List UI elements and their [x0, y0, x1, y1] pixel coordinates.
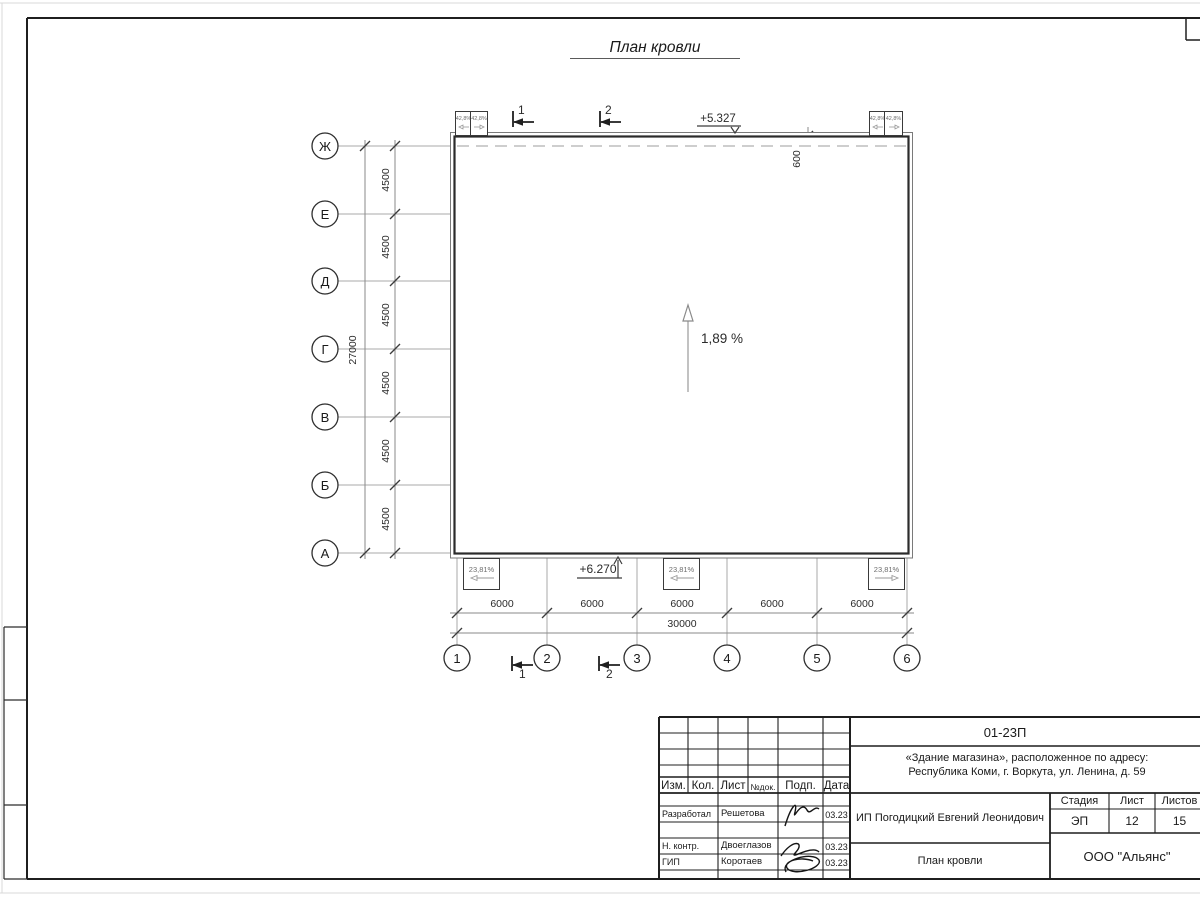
- tb-col-list: Лист: [718, 779, 748, 792]
- dim-row-spacing: 4500: [380, 225, 392, 269]
- axis-row-label: Б: [313, 473, 337, 497]
- dim-row-spacing: 4500: [380, 361, 392, 405]
- tb-name: Двоеглазов: [721, 840, 772, 851]
- dim-col-spacing: 6000: [750, 598, 794, 610]
- left-margin-stamp: [4, 627, 27, 879]
- dim-col-spacing: 6000: [570, 598, 614, 610]
- tb-date: 03.23: [823, 857, 850, 868]
- axis-col-label: 3: [625, 646, 649, 670]
- sheet-label: Лист: [1109, 794, 1155, 808]
- section-mark-number: 1: [518, 103, 525, 117]
- slope-right-arrow-icon: [888, 124, 900, 130]
- drain-slope-label: 23,81%: [874, 566, 899, 574]
- section-mark-number: 1: [519, 667, 526, 681]
- stage-value: ЭП: [1050, 812, 1109, 830]
- dim-col-spacing: 6000: [480, 598, 524, 610]
- axis-row-label: В: [313, 405, 337, 429]
- tb-col-ndok: №док.: [748, 781, 778, 792]
- dim-col-total: 30000: [657, 618, 707, 630]
- axis-col-label: 2: [535, 646, 559, 670]
- tb-col-kol: Кол.: [688, 779, 718, 792]
- tb-date: 03.23: [823, 809, 850, 820]
- project-address-line2: Республика Коми, г. Воркута, ул. Ленина,…: [850, 765, 1200, 779]
- roof-outline: [451, 133, 913, 559]
- axis-col-label: 4: [715, 646, 739, 670]
- tb-name: Решетова: [721, 808, 765, 819]
- sheets-total: 15: [1155, 812, 1200, 830]
- dim-parapet-offset: 600: [791, 144, 803, 174]
- tb-date: 03.23: [823, 841, 850, 852]
- drain-slope-label: 42,8%: [456, 117, 472, 123]
- section-mark-number: 2: [606, 667, 613, 681]
- dim-col-spacing: 6000: [840, 598, 884, 610]
- sheet-number: 12: [1109, 812, 1155, 830]
- document-code: 01-23П: [850, 721, 1160, 743]
- tb-role: Разработал: [662, 809, 711, 819]
- axis-row-label: Ж: [313, 134, 337, 158]
- drain-slope-label: 42,8%: [471, 117, 487, 123]
- axis-col-label: 5: [805, 646, 829, 670]
- elevation-top: +5.327: [697, 112, 739, 125]
- stage-label: Стадия: [1050, 794, 1109, 808]
- drawing-sheet: План кровли Ж Е Д Г В Б А 1 2 3 4 5 6 45…: [0, 0, 1200, 900]
- tb-name: Коротаев: [721, 856, 762, 867]
- elevation-bottom: +6.270: [577, 561, 619, 576]
- project-address-line1: «Здание магазина», расположенное по адре…: [850, 751, 1200, 765]
- axis-row-label: Е: [313, 202, 337, 226]
- axis-col-label: 6: [895, 646, 919, 670]
- slope-left-arrow-icon: [669, 574, 695, 582]
- axis-row-label: Г: [313, 337, 337, 361]
- axis-row-label: А: [313, 541, 337, 565]
- drain-box: 23,81%: [663, 558, 700, 590]
- slope-right-arrow-icon: [874, 574, 900, 582]
- company-name: ООО "Альянс": [1050, 840, 1200, 872]
- signature-strokes: [781, 805, 819, 872]
- drain-slope-label: 23,81%: [469, 566, 494, 574]
- drain-box: 42,8%: [884, 111, 903, 136]
- dim-row-spacing: 4500: [380, 293, 392, 337]
- dim-col-spacing: 6000: [660, 598, 704, 610]
- drain-slope-label: 42,8%: [870, 117, 886, 123]
- drain-slope-label: 42,8%: [886, 117, 902, 123]
- tb-role: ГИП: [662, 857, 680, 867]
- slope-left-arrow-icon: [872, 124, 884, 130]
- tb-col-data: Дата: [823, 779, 850, 792]
- drawing-title: План кровли: [570, 38, 740, 59]
- drain-box: 23,81%: [868, 558, 905, 590]
- slope-label: 1,89 %: [701, 331, 743, 346]
- drain-box: 23,81%: [463, 558, 500, 590]
- section-mark-number: 2: [605, 103, 612, 117]
- axis-col-label: 1: [445, 646, 469, 670]
- tb-col-podp: Подп.: [778, 779, 823, 792]
- drain-box: 42,8%: [470, 111, 488, 136]
- dim-row-spacing: 4500: [380, 158, 392, 202]
- sheets-label: Листов: [1155, 794, 1200, 808]
- slope-right-arrow-icon: [473, 124, 485, 130]
- dim-row-spacing: 4500: [380, 497, 392, 541]
- dim-row-total: 27000: [347, 325, 359, 375]
- tb-role: Н. контр.: [662, 841, 699, 851]
- axis-row-label: Д: [313, 269, 337, 293]
- sheet-title: План кровли: [852, 843, 1048, 879]
- tb-col-izm: Изм.: [659, 779, 688, 792]
- slope-left-arrow-icon: [469, 574, 495, 582]
- client-name: ИП Погодицкий Евгений Леонидович: [852, 793, 1048, 843]
- dim-row-spacing: 4500: [380, 429, 392, 473]
- slope-left-arrow-icon: [458, 124, 470, 130]
- drain-slope-label: 23,81%: [669, 566, 694, 574]
